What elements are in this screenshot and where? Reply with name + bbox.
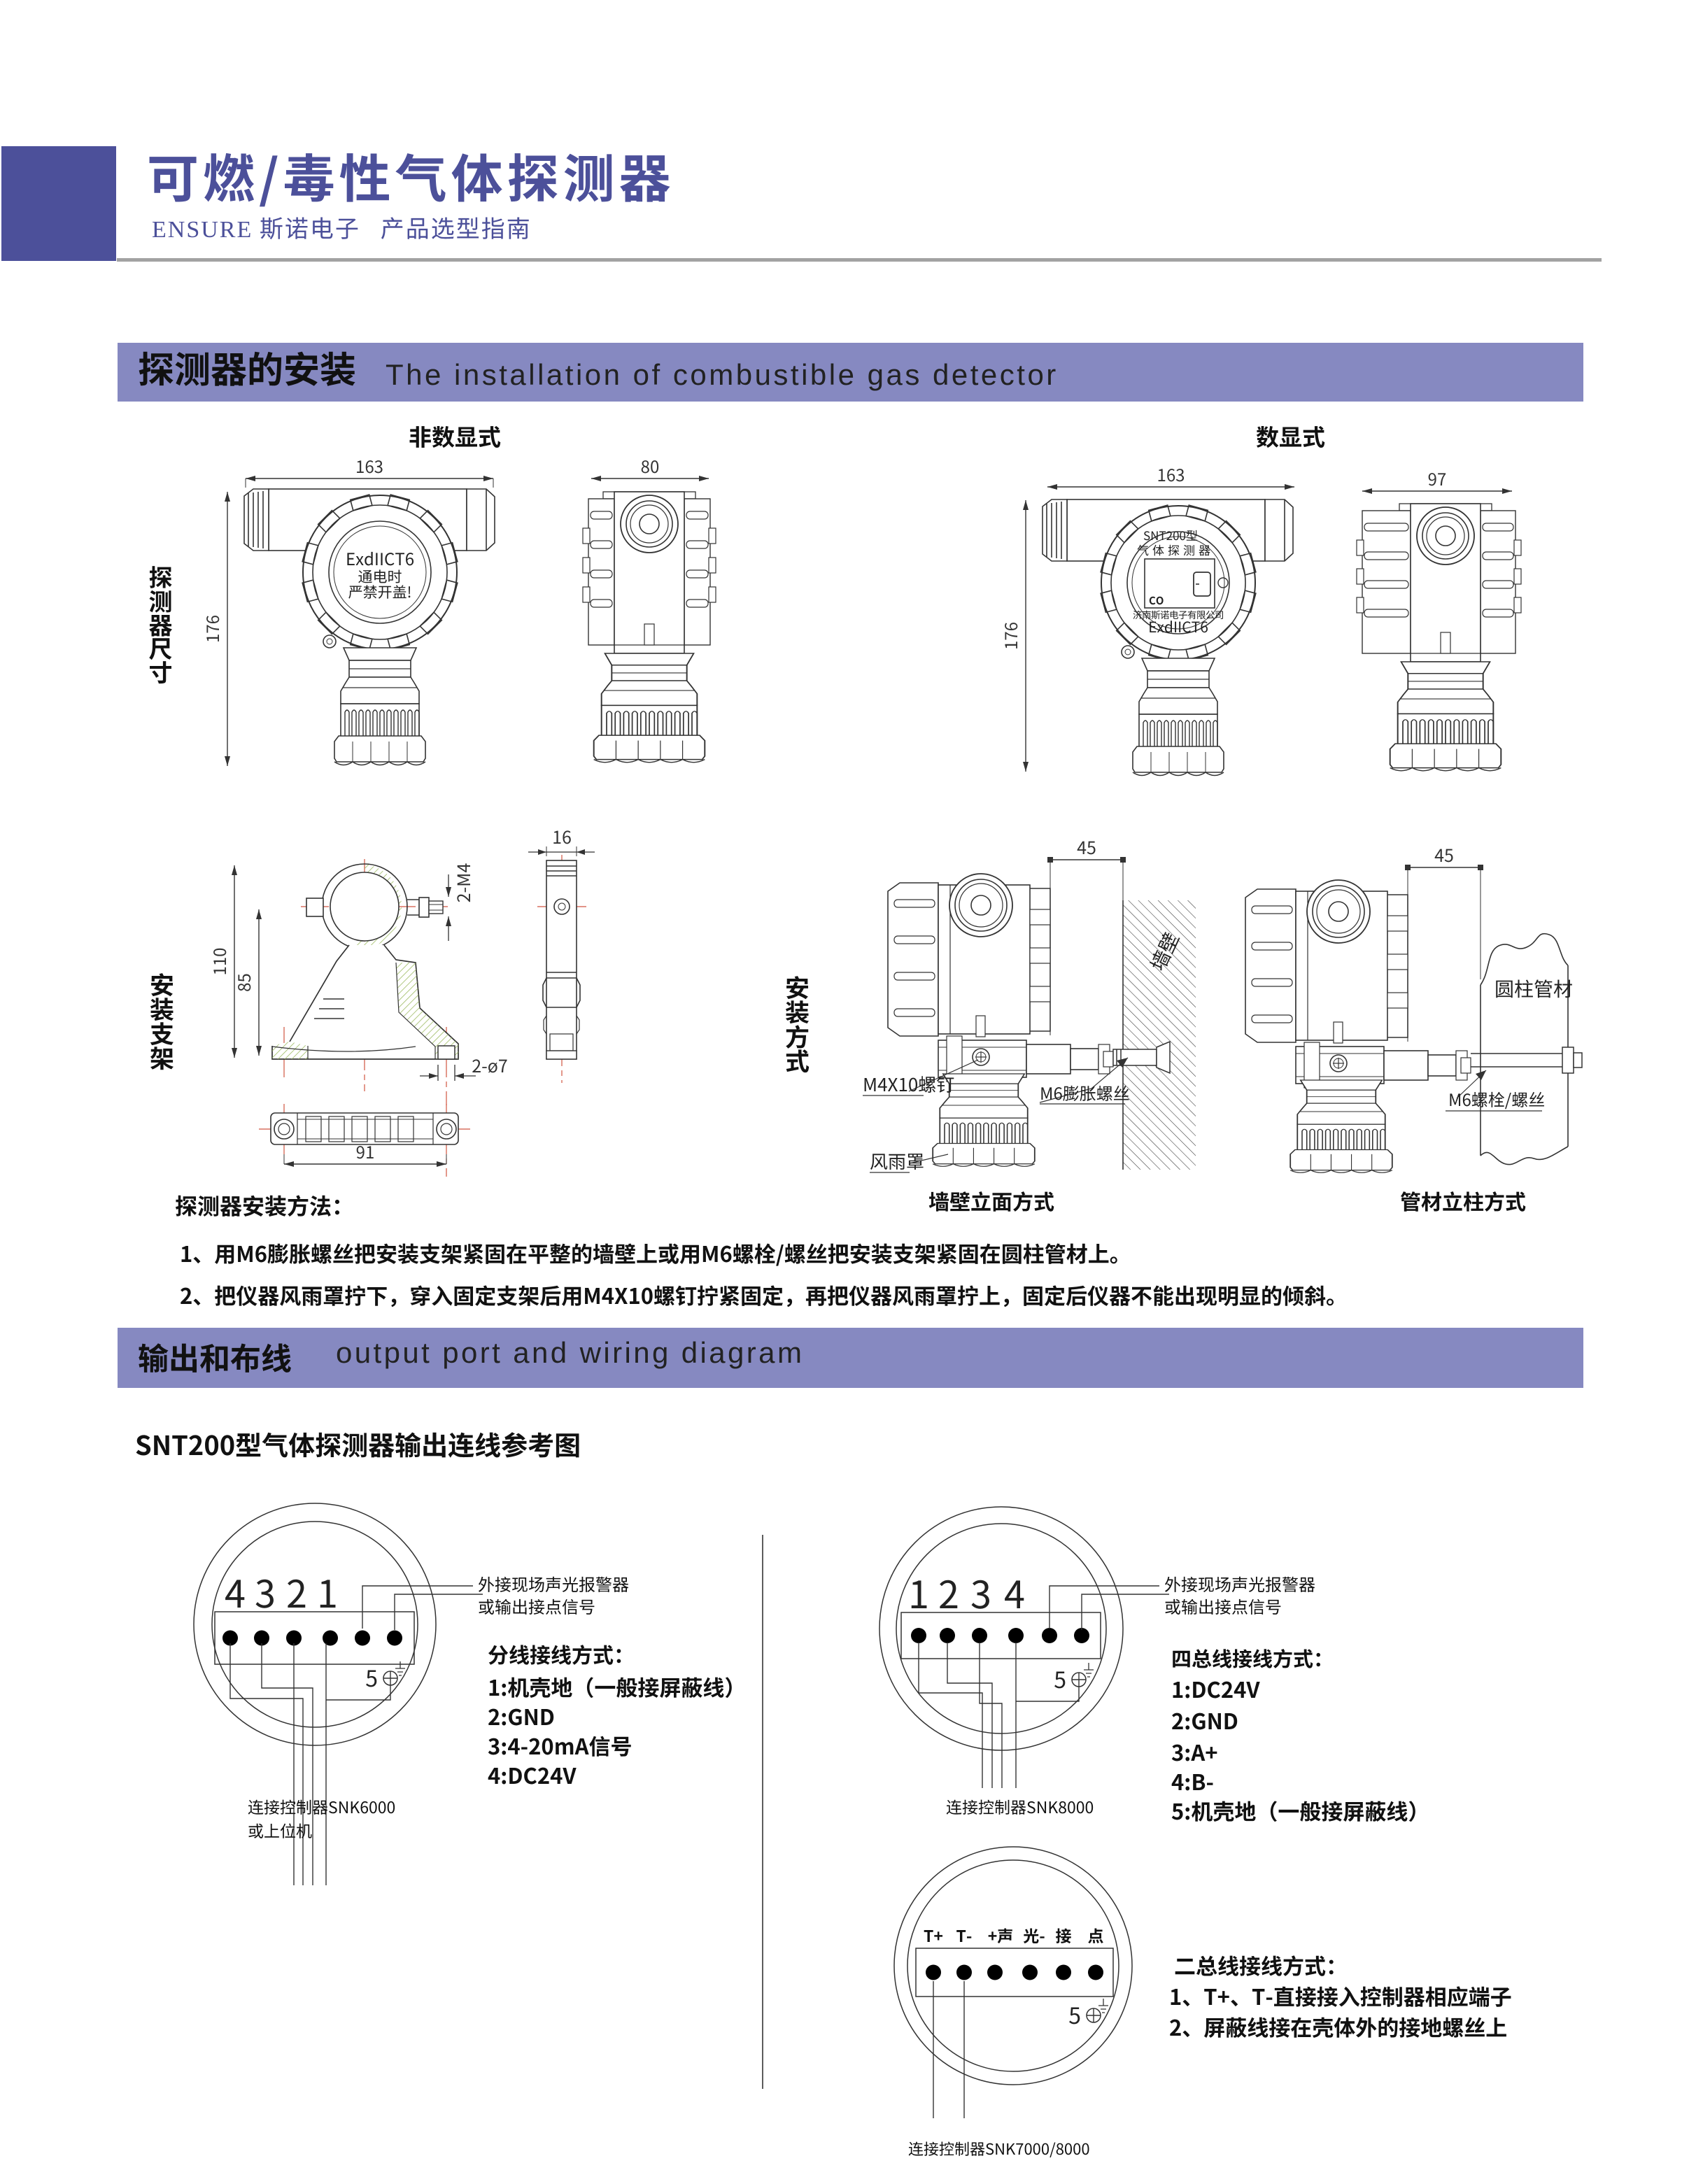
svg-text:4: 4 bbox=[1004, 1564, 1025, 1619]
svg-text:5: 5 bbox=[365, 1661, 378, 1694]
svg-text:176: 176 bbox=[199, 615, 224, 643]
svg-text:CO: CO bbox=[1149, 593, 1164, 608]
svg-text:M6膨胀螺丝: M6膨胀螺丝 bbox=[1040, 1080, 1130, 1105]
svg-text:连接控制器SNK7000/8000: 连接控制器SNK7000/8000 bbox=[908, 2137, 1090, 2160]
svg-text:5: 5 bbox=[1068, 1999, 1081, 2031]
svg-text:2: 2 bbox=[286, 1563, 307, 1619]
svg-text:4:DC24V: 4:DC24V bbox=[488, 1759, 577, 1790]
svg-text:连接控制器SNK8000: 连接控制器SNK8000 bbox=[946, 1794, 1094, 1818]
svg-text:110: 110 bbox=[206, 948, 231, 976]
svg-text:二总线接线方式：: 二总线接线方式： bbox=[1174, 1949, 1348, 1980]
svg-text:91: 91 bbox=[356, 1139, 375, 1163]
svg-text:3: 3 bbox=[970, 1564, 991, 1619]
svg-text:连接控制器SNK6000: 连接控制器SNK6000 bbox=[248, 1794, 395, 1818]
svg-text:45: 45 bbox=[1434, 842, 1454, 867]
svg-text:2-ø7: 2-ø7 bbox=[472, 1053, 508, 1078]
svg-text:97: 97 bbox=[1428, 466, 1447, 490]
svg-text:1: 1 bbox=[317, 1563, 338, 1619]
svg-text:2、屏蔽线接在壳体外的接地螺丝上: 2、屏蔽线接在壳体外的接地螺丝上 bbox=[1169, 2011, 1507, 2042]
svg-text:45: 45 bbox=[1077, 835, 1096, 860]
svg-text:气体探测器: 气体探测器 bbox=[1137, 541, 1214, 558]
svg-text:四总线接线方式：: 四总线接线方式： bbox=[1171, 1643, 1334, 1673]
svg-text:3:A+: 3:A+ bbox=[1171, 1736, 1218, 1767]
svg-text:或输出接点信号: 或输出接点信号 bbox=[1164, 1594, 1282, 1618]
svg-text:光-: 光- bbox=[1023, 1923, 1045, 1947]
svg-text:M4X10螺钉: M4X10螺钉 bbox=[863, 1071, 954, 1097]
svg-text:5:机壳地（一般接屏蔽线）: 5:机壳地（一般接屏蔽线） bbox=[1171, 1794, 1429, 1826]
svg-text:2:GND: 2:GND bbox=[1171, 1704, 1238, 1736]
svg-text:T+: T+ bbox=[924, 1923, 943, 1947]
svg-text:163: 163 bbox=[1157, 462, 1185, 486]
svg-text:外接现场声光报警器: 外接现场声光报警器 bbox=[1164, 1571, 1315, 1596]
svg-text:1:DC24V: 1:DC24V bbox=[1171, 1673, 1260, 1704]
svg-text:5: 5 bbox=[1054, 1663, 1066, 1695]
svg-text:2:GND: 2:GND bbox=[488, 1700, 555, 1731]
svg-text:+声: +声 bbox=[988, 1923, 1014, 1947]
svg-text:圆柱管材: 圆柱管材 bbox=[1494, 974, 1573, 1002]
svg-text:严禁开盖!: 严禁开盖! bbox=[348, 581, 412, 602]
svg-text:接: 接 bbox=[1056, 1923, 1072, 1947]
svg-text:80: 80 bbox=[641, 453, 660, 478]
svg-text:1:机壳地（一般接屏蔽线）: 1:机壳地（一般接屏蔽线） bbox=[488, 1671, 746, 1702]
svg-text:2-M4: 2-M4 bbox=[451, 863, 476, 903]
svg-text:M6螺栓/螺丝: M6螺栓/螺丝 bbox=[1448, 1086, 1545, 1111]
svg-text:风雨罩: 风雨罩 bbox=[870, 1148, 924, 1174]
svg-text:分线接线方式：: 分线接线方式： bbox=[488, 1638, 635, 1669]
svg-text:2: 2 bbox=[938, 1564, 959, 1619]
svg-text:3:4-20mA信号: 3:4-20mA信号 bbox=[488, 1729, 632, 1761]
svg-text:或上位机: 或上位机 bbox=[248, 1818, 312, 1842]
svg-text:T-: T- bbox=[956, 1923, 973, 1947]
svg-text:或输出接点信号: 或输出接点信号 bbox=[478, 1594, 595, 1618]
svg-text:85: 85 bbox=[231, 973, 255, 992]
svg-text:3: 3 bbox=[255, 1563, 276, 1619]
svg-text:163: 163 bbox=[355, 453, 383, 478]
svg-text:点: 点 bbox=[1088, 1923, 1104, 1947]
svg-text:4:B-: 4:B- bbox=[1171, 1765, 1214, 1796]
svg-text:ExdIICT6: ExdIICT6 bbox=[1148, 616, 1208, 637]
svg-text:4: 4 bbox=[225, 1563, 246, 1619]
svg-text:1、T+、T-直接接入控制器相应端子: 1、T+、T-直接接入控制器相应端子 bbox=[1169, 1980, 1512, 2011]
svg-text:外接现场声光报警器: 外接现场声光报警器 bbox=[478, 1571, 629, 1596]
svg-text:176: 176 bbox=[998, 622, 1022, 650]
svg-text:1: 1 bbox=[908, 1564, 929, 1619]
svg-text:16: 16 bbox=[552, 824, 572, 849]
